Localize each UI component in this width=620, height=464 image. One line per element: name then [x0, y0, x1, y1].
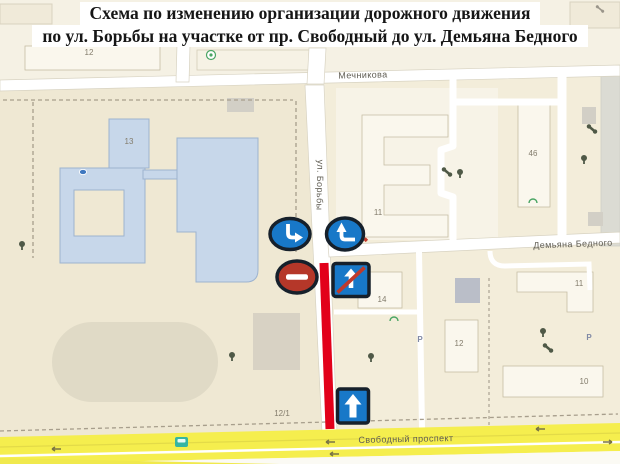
title-line-2: по ул. Борьбы на участке от пр. Свободны…: [32, 25, 587, 48]
route-highlight-red-line: [324, 263, 330, 429]
building-label-10: 10: [580, 377, 589, 386]
turn-right-sign-icon: [270, 219, 310, 250]
title-line-1: Схема по изменению организации дорожного…: [80, 2, 541, 25]
road-borby-north: [307, 48, 326, 84]
road-access-top: [176, 45, 190, 82]
parking-label: P: [586, 333, 592, 342]
building-label-12-top: 12: [85, 48, 94, 57]
end-of-one-way-sign-icon: [333, 264, 369, 297]
building-label-12-center: 12: [455, 339, 464, 348]
stadium-oval: [52, 322, 218, 402]
gray-building: [253, 313, 300, 370]
viewpoint-icon: [79, 169, 86, 174]
parking-label: P: [417, 335, 423, 344]
building-label-12-1: 12/1: [274, 409, 290, 418]
title-line-2-band: по ул. Борьбы на участке от пр. Свободны…: [0, 25, 620, 48]
street-label-borby: ул. Борьбы: [315, 160, 326, 211]
gray-building: [455, 278, 480, 303]
school-building-connector: [143, 170, 179, 179]
map-canvas: Мечникова ул. Борьбы Демьяна Бедного Сво…: [0, 0, 620, 464]
building-label-14: 14: [378, 295, 387, 304]
gray-building: [582, 107, 596, 124]
one-way-sign-icon: [338, 389, 369, 423]
poi-green-icon: [207, 51, 216, 60]
building-label-11-left: 11: [374, 208, 383, 217]
gray-road-strip: [601, 66, 620, 246]
building-label-46: 46: [529, 149, 538, 158]
building-label-13: 13: [125, 137, 134, 146]
street-label-mechnikova: Мечникова: [338, 69, 388, 80]
building-label-11-right: 11: [575, 279, 584, 288]
title-line-1-band: Схема по изменению организации дорожного…: [0, 2, 620, 25]
no-entry-sign-icon: [277, 261, 317, 293]
street-label-svobodny: Свободный проспект: [358, 433, 453, 445]
bus-stop-icon: [175, 437, 188, 447]
gray-building: [588, 212, 603, 226]
road-scheme-screenshot: Мечникова ул. Борьбы Демьяна Бедного Сво…: [0, 0, 620, 464]
turn-left-up-sign-icon: [327, 218, 364, 250]
scheme-title: Схема по изменению организации дорожного…: [0, 0, 620, 47]
